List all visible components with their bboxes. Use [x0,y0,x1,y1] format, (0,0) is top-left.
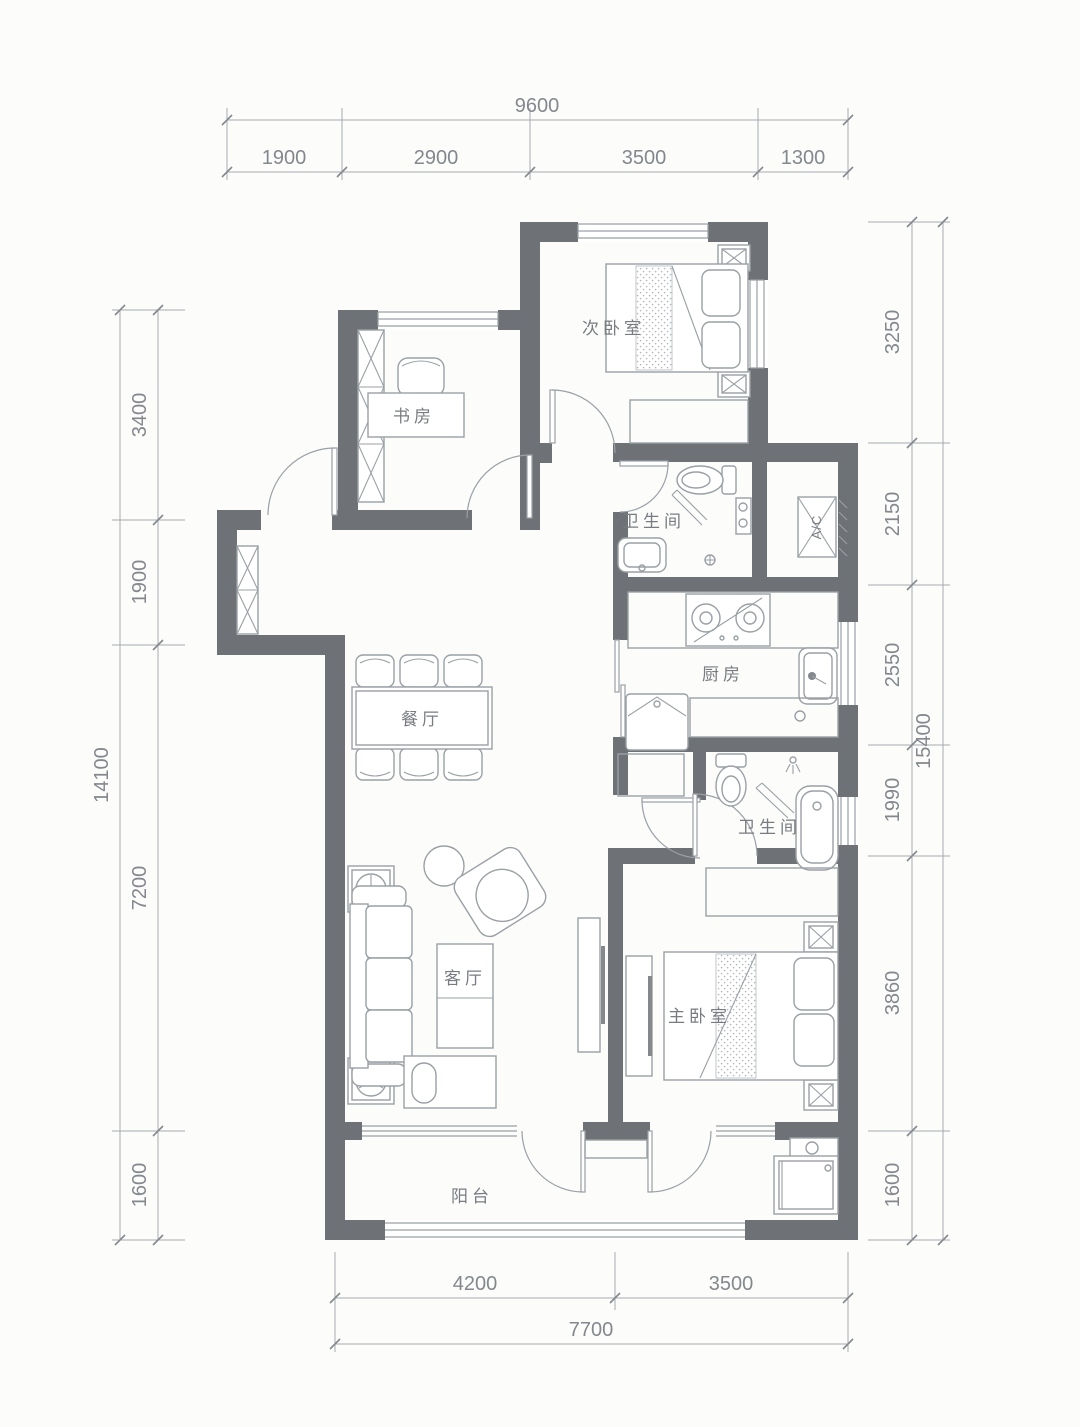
dining-chair [400,748,438,780]
dim-top-seg-3: 1300 [781,147,826,169]
dim-right-seg-2: 2550 [882,643,904,688]
master-balcony-door [648,1131,711,1192]
window-balcony-front [385,1220,745,1240]
room-label-kitchen: 厨房 [702,665,744,684]
fridge [626,694,688,750]
room-label-bathroom-lower: 卫生间 [738,818,801,837]
secondary-bedroom-door [550,390,615,453]
toilet [677,466,736,494]
window-secondary-bedroom [578,222,708,242]
dining-chair [444,655,482,687]
room-label-balcony: 阳台 [451,1187,493,1206]
dim-right-seg-5: 1600 [882,1163,904,1208]
room-label-dining: 餐厅 [401,710,443,729]
floor-plan-drawing: 次卧室 书房 [0,0,1080,1427]
sofa [350,886,412,1086]
dim-right-total: 15400 [913,713,935,769]
dining-chair [400,655,438,687]
room-living: 客厅 [348,843,605,1108]
sink [618,538,666,572]
nightstand [804,922,838,952]
dim-right: 15400 3250 2150 2550 1990 3860 1600 [868,217,950,1245]
stove [686,594,770,646]
floor-plan-page: 次卧室 书房 [0,0,1080,1427]
room-label-bathroom-upper: 卫生间 [622,512,685,531]
dim-top-total: 9600 [515,95,560,117]
window-bathroom-lower [838,797,858,845]
floor-drain [795,711,805,721]
dim-right-seg-1: 2150 [882,492,904,537]
floor-drain [705,555,715,565]
dim-left-seg-0: 3400 [129,393,151,438]
dim-left-seg-1: 1900 [129,560,151,605]
nightstand [804,1080,838,1110]
desk-chair [398,358,444,396]
room-bathroom-upper: 卫生间 [618,466,751,572]
tv-cabinet [626,956,652,1076]
dim-bottom-seg-0: 4200 [453,1273,498,1295]
bathroom-upper-door [620,461,668,512]
dim-left-seg-3: 1600 [129,1163,151,1208]
dining-chair [356,748,394,780]
room-label-master-bedroom: 主卧室 [668,1007,731,1026]
room-kitchen: 厨房 [626,592,838,750]
bathtub [796,786,838,870]
nightstand [718,371,750,397]
washing-machine [774,1156,838,1214]
kitchen-sink [799,648,837,704]
room-master-bedroom: 主卧室 [626,868,838,1110]
dim-right-seg-3: 1990 [882,778,904,823]
window-kitchen [838,622,858,705]
dim-bottom: 4200 3500 7700 [330,1252,853,1352]
kitchen-sliding-door [615,640,625,737]
toilet [716,754,746,806]
shoe-cabinet [237,546,258,634]
window-living-balcony [362,1126,517,1136]
bench [404,1056,496,1108]
dim-top-seg-0: 1900 [262,147,307,169]
room-label-study: 书房 [393,407,435,426]
room-dining: 餐厅 [352,655,492,780]
dim-left-seg-2: 7200 [129,866,151,911]
balcony-shelf [790,1138,838,1158]
dining-chair [444,748,482,780]
threshold [585,1140,647,1158]
dim-top: 9600 1900 2900 3500 1300 [222,95,853,180]
dim-top-seg-2: 3500 [622,147,667,169]
dim-right-seg-0: 3250 [882,310,904,355]
window-study [378,310,498,330]
dim-right-seg-4: 3860 [882,971,904,1016]
room-secondary-bedroom: 次卧室 [582,245,750,443]
window-secondary-bedroom-east [748,280,768,368]
room-label-secondary-bedroom: 次卧室 [582,319,645,338]
wardrobe-master [706,868,838,916]
room-label-living: 客厅 [444,969,486,988]
living-balcony-door [522,1131,585,1192]
coffee-table [437,944,493,1048]
vanity-taps [736,498,751,534]
room-study: 书房 [358,330,464,502]
bed-secondary [606,264,748,372]
armchair [450,843,550,941]
dining-chair [356,655,394,687]
dim-bottom-seg-1: 3500 [709,1273,754,1295]
dim-left: 14100 3400 1900 7200 1600 [91,305,185,1245]
entry-door [268,448,337,515]
tv-console [578,918,605,1052]
dim-top-seg-1: 2900 [414,147,459,169]
room-label-ac: A/C [809,515,824,540]
walls [217,222,858,1240]
room-balcony: 阳台 [451,1138,838,1214]
dim-left-total: 14100 [91,747,113,803]
window-master-balcony [716,1126,775,1136]
dim-bottom-total: 7700 [569,1319,614,1341]
shower [756,757,800,818]
wardrobe-secondary [630,400,748,443]
